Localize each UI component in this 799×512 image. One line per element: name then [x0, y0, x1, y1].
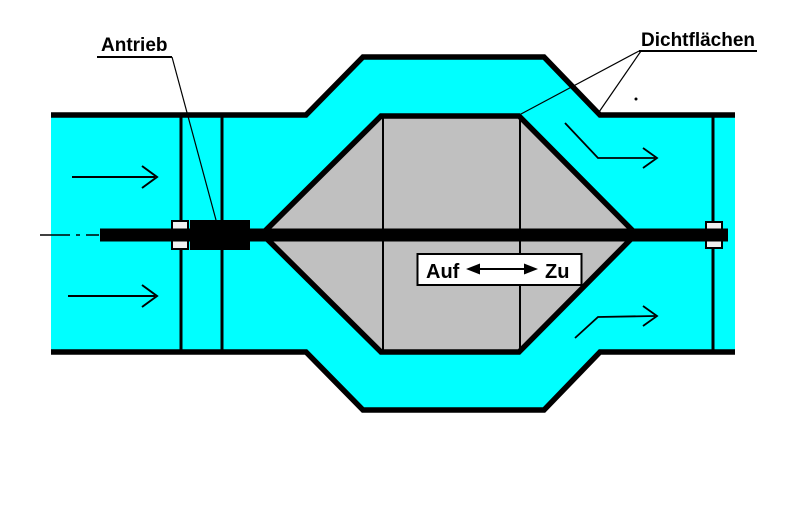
diagram-drawing: Auf Zu Antrieb Dichtflächen: [0, 0, 799, 512]
stray-dot: [635, 98, 638, 101]
label-actuator: Antrieb: [101, 35, 168, 56]
sealing-leader-line-2: [599, 51, 641, 112]
actuator-block: [190, 220, 250, 250]
label-close: Zu: [545, 261, 569, 283]
open-close-indicator: Auf Zu: [418, 254, 582, 285]
valve-cross-section-diagram: Auf Zu Antrieb Dichtflächen: [0, 0, 799, 512]
label-sealing-surfaces: Dichtflächen: [641, 30, 755, 51]
label-open: Auf: [426, 261, 460, 283]
